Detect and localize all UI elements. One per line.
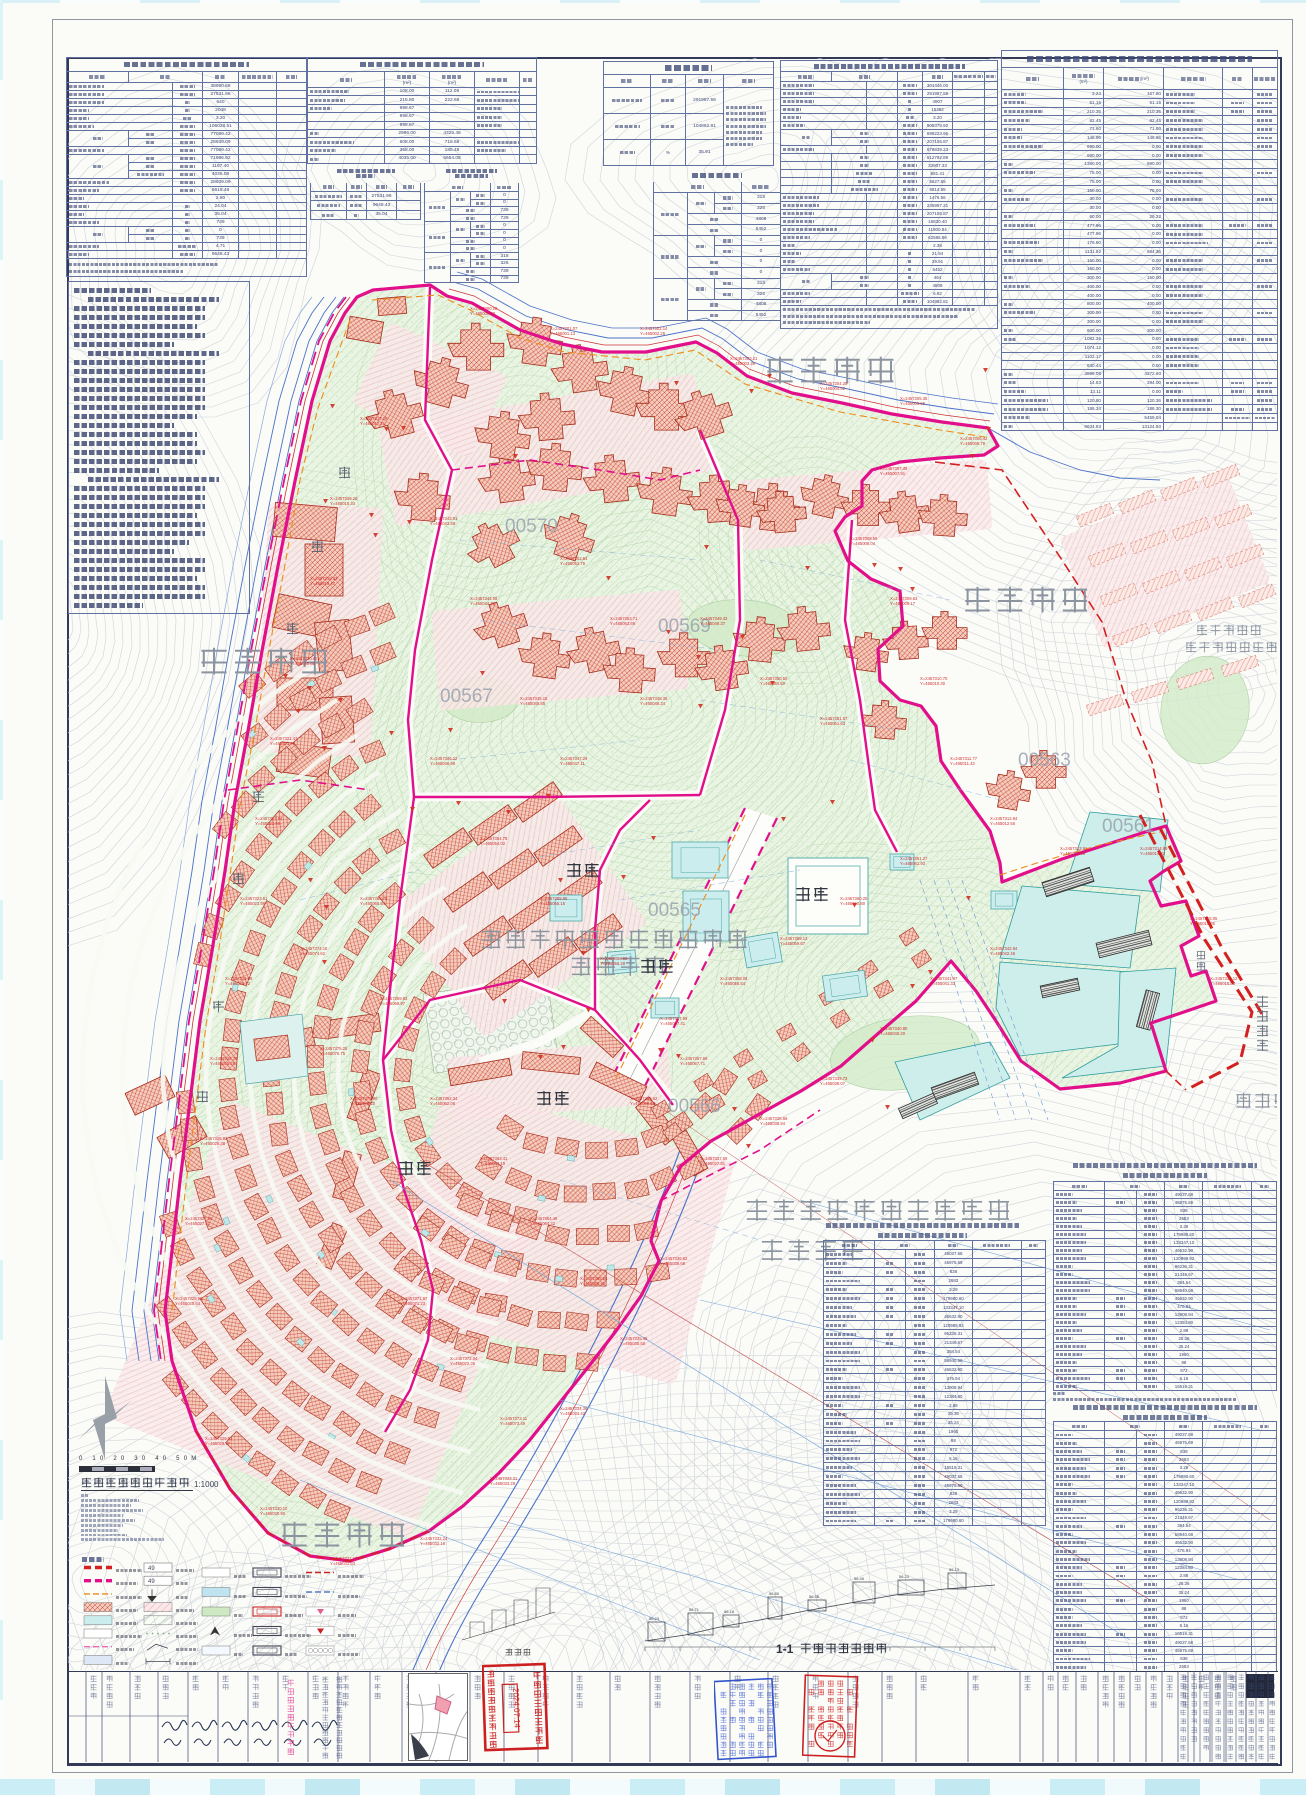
svg-text:Y=465058.54: Y=465058.54 [720,981,746,986]
svg-text:Y=465061.93: Y=465061.93 [900,861,926,866]
svg-text:Y=465052.76: Y=465052.76 [560,561,586,566]
svg-text:Y=465000.00: Y=465000.00 [470,311,496,316]
svg-text:Y=465040.20: Y=465040.20 [880,1031,906,1036]
svg-text:00565: 00565 [648,900,701,921]
svg-text:Y=465018.34: Y=465018.34 [330,501,356,506]
svg-text:Y=465009.17: Y=465009.17 [890,601,916,606]
svg-text:Y=465015.95: Y=465015.95 [1190,921,1216,926]
svg-text:Y=465012.56: Y=465012.56 [990,821,1016,826]
svg-text:Y=465025.25: Y=465025.25 [210,1061,236,1066]
svg-text:Y=465026.38: Y=465026.38 [200,1141,226,1146]
svg-text:Y=465030.90: Y=465030.90 [260,1511,286,1516]
svg-text:49: 49 [148,1579,155,1585]
svg-text:Y=465001.13: Y=465001.13 [550,331,576,336]
svg-text:Y=465070.10: Y=465070.10 [350,1101,376,1106]
svg-text:Y=465004.52: Y=465004.52 [820,386,846,391]
svg-text:Y=465073.49: Y=465073.49 [500,1421,526,1426]
svg-text:56.13: 56.13 [949,1567,960,1572]
svg-text:2024.07.14: 2024.07.14 [511,1688,521,1729]
svg-text:56.71: 56.71 [689,1607,700,1612]
svg-text:Y=465016.08: Y=465016.08 [1210,981,1236,986]
svg-text:Y=465062.06: Y=465062.06 [430,1101,456,1106]
svg-text:Y=465067.71: Y=465067.71 [680,1061,706,1066]
svg-text:Y=465021.73: Y=465021.73 [270,741,296,746]
svg-text:Y=465020.60: Y=465020.60 [290,661,316,666]
svg-text:56.45: 56.45 [854,1576,865,1581]
svg-text:Y=465038.94: Y=465038.94 [760,1121,786,1126]
svg-text:Y=465045.85: Y=465045.85 [520,701,546,706]
svg-text:Y=465053.89: Y=465053.89 [610,621,636,626]
svg-text:00563: 00563 [1018,750,1071,771]
svg-text:00567: 00567 [440,686,493,707]
svg-text:Y=465019.47: Y=465019.47 [310,581,336,586]
svg-text:Y=465017.21: Y=465017.21 [360,421,386,426]
svg-text:Y=465051.63: Y=465051.63 [820,721,846,726]
svg-text:Y=465056.28: Y=465056.28 [600,961,626,966]
svg-text:Y=465006.78: Y=465006.78 [960,441,986,446]
svg-text:Y=465007.91: Y=465007.91 [880,471,906,476]
svg-text:Y=465042.46: Y=465042.46 [990,951,1016,956]
svg-text:Y=465002.26: Y=465002.26 [640,331,666,336]
svg-text:56.38: 56.38 [809,1594,820,1599]
svg-text:49: 49 [148,1566,155,1572]
svg-text:Y=465071.23: Y=465071.23 [400,1301,426,1306]
svg-text:Y=465049.37: Y=465049.37 [700,621,726,626]
svg-text:Y=465048.24: Y=465048.24 [640,701,666,706]
svg-text:Y=465054.02: Y=465054.02 [480,841,506,846]
svg-text:Y=465028.64: Y=465028.64 [175,1301,201,1306]
svg-text:Y=465055.15: Y=465055.15 [540,901,566,906]
svg-text:Y=465075.75: Y=465075.75 [320,1051,346,1056]
svg-text:Y=465033.29: Y=465033.29 [490,1481,516,1486]
svg-text:56.18: 56.18 [724,1609,735,1614]
svg-text:Y=465044.72: Y=465044.72 [470,601,496,606]
svg-text:00566: 00566 [668,1096,721,1117]
svg-text:Y=465022.86: Y=465022.86 [255,821,281,826]
svg-text:Y=465059.67: Y=465059.67 [780,941,806,946]
svg-text:56.23: 56.23 [899,1574,910,1579]
svg-text:Y=465011.43: Y=465011.43 [950,761,975,766]
svg-text:Y=465068.84: Y=465068.84 [360,901,386,906]
svg-text:Y=465013.69: Y=465013.69 [1060,851,1086,856]
svg-text:Y=465034.42: Y=465034.42 [560,1411,586,1416]
svg-text:Y=465069.97: Y=465069.97 [380,1001,406,1006]
svg-text:Y=465063.19: Y=465063.19 [480,1161,506,1166]
svg-text:Y=465046.98: Y=465046.98 [430,761,456,766]
svg-text:Y=465014.82: Y=465014.82 [1140,851,1166,856]
svg-text:56.23: 56.23 [649,1616,660,1621]
svg-text:Y=465041.33: Y=465041.33 [930,981,956,986]
svg-text:Y=465005.65: Y=465005.65 [900,401,926,406]
svg-text:Y=465036.68: Y=465036.68 [660,1261,686,1266]
svg-text:Y=465008.04: Y=465008.04 [850,541,876,546]
svg-text:Y=465032.16: Y=465032.16 [420,1541,446,1546]
svg-text:Y=465065.45: Y=465065.45 [580,1281,606,1286]
svg-text:1:1000: 1:1000 [194,1480,219,1489]
svg-text:Y=465035.55: Y=465035.55 [620,1341,646,1346]
svg-text:56.80: 56.80 [769,1591,780,1596]
svg-text:Y=465024.12: Y=465024.12 [225,981,251,986]
svg-text:Y=465003.39: Y=465003.39 [730,361,756,366]
svg-text:00561: 00561 [1102,816,1155,837]
svg-text:Y=465039.07: Y=465039.07 [820,1081,846,1086]
svg-text:Y=465072.36: Y=465072.36 [450,1361,476,1366]
svg-text:Y=465043.59: Y=465043.59 [430,521,456,526]
svg-text:Y=465047.11: Y=465047.11 [560,761,585,766]
svg-text:Y=465074.62: Y=465074.62 [300,951,326,956]
svg-text:Y=465023.99: Y=465023.99 [240,901,266,906]
svg-text:1-1: 1-1 [776,1642,794,1656]
svg-text:Y=465064.32: Y=465064.32 [530,1221,556,1226]
svg-text:Y=465029.77: Y=465029.77 [205,1441,231,1446]
svg-text:Y=465037.81: Y=465037.81 [700,1161,726,1166]
svg-text:Y=465010.30: Y=465010.30 [920,681,946,686]
svg-text:Y=465057.41: Y=465057.41 [660,1021,686,1026]
svg-text:00570: 00570 [505,516,558,537]
svg-text:Y=465066.58: Y=465066.58 [630,1101,656,1106]
svg-text:Y=465027.51: Y=465027.51 [185,1221,211,1226]
